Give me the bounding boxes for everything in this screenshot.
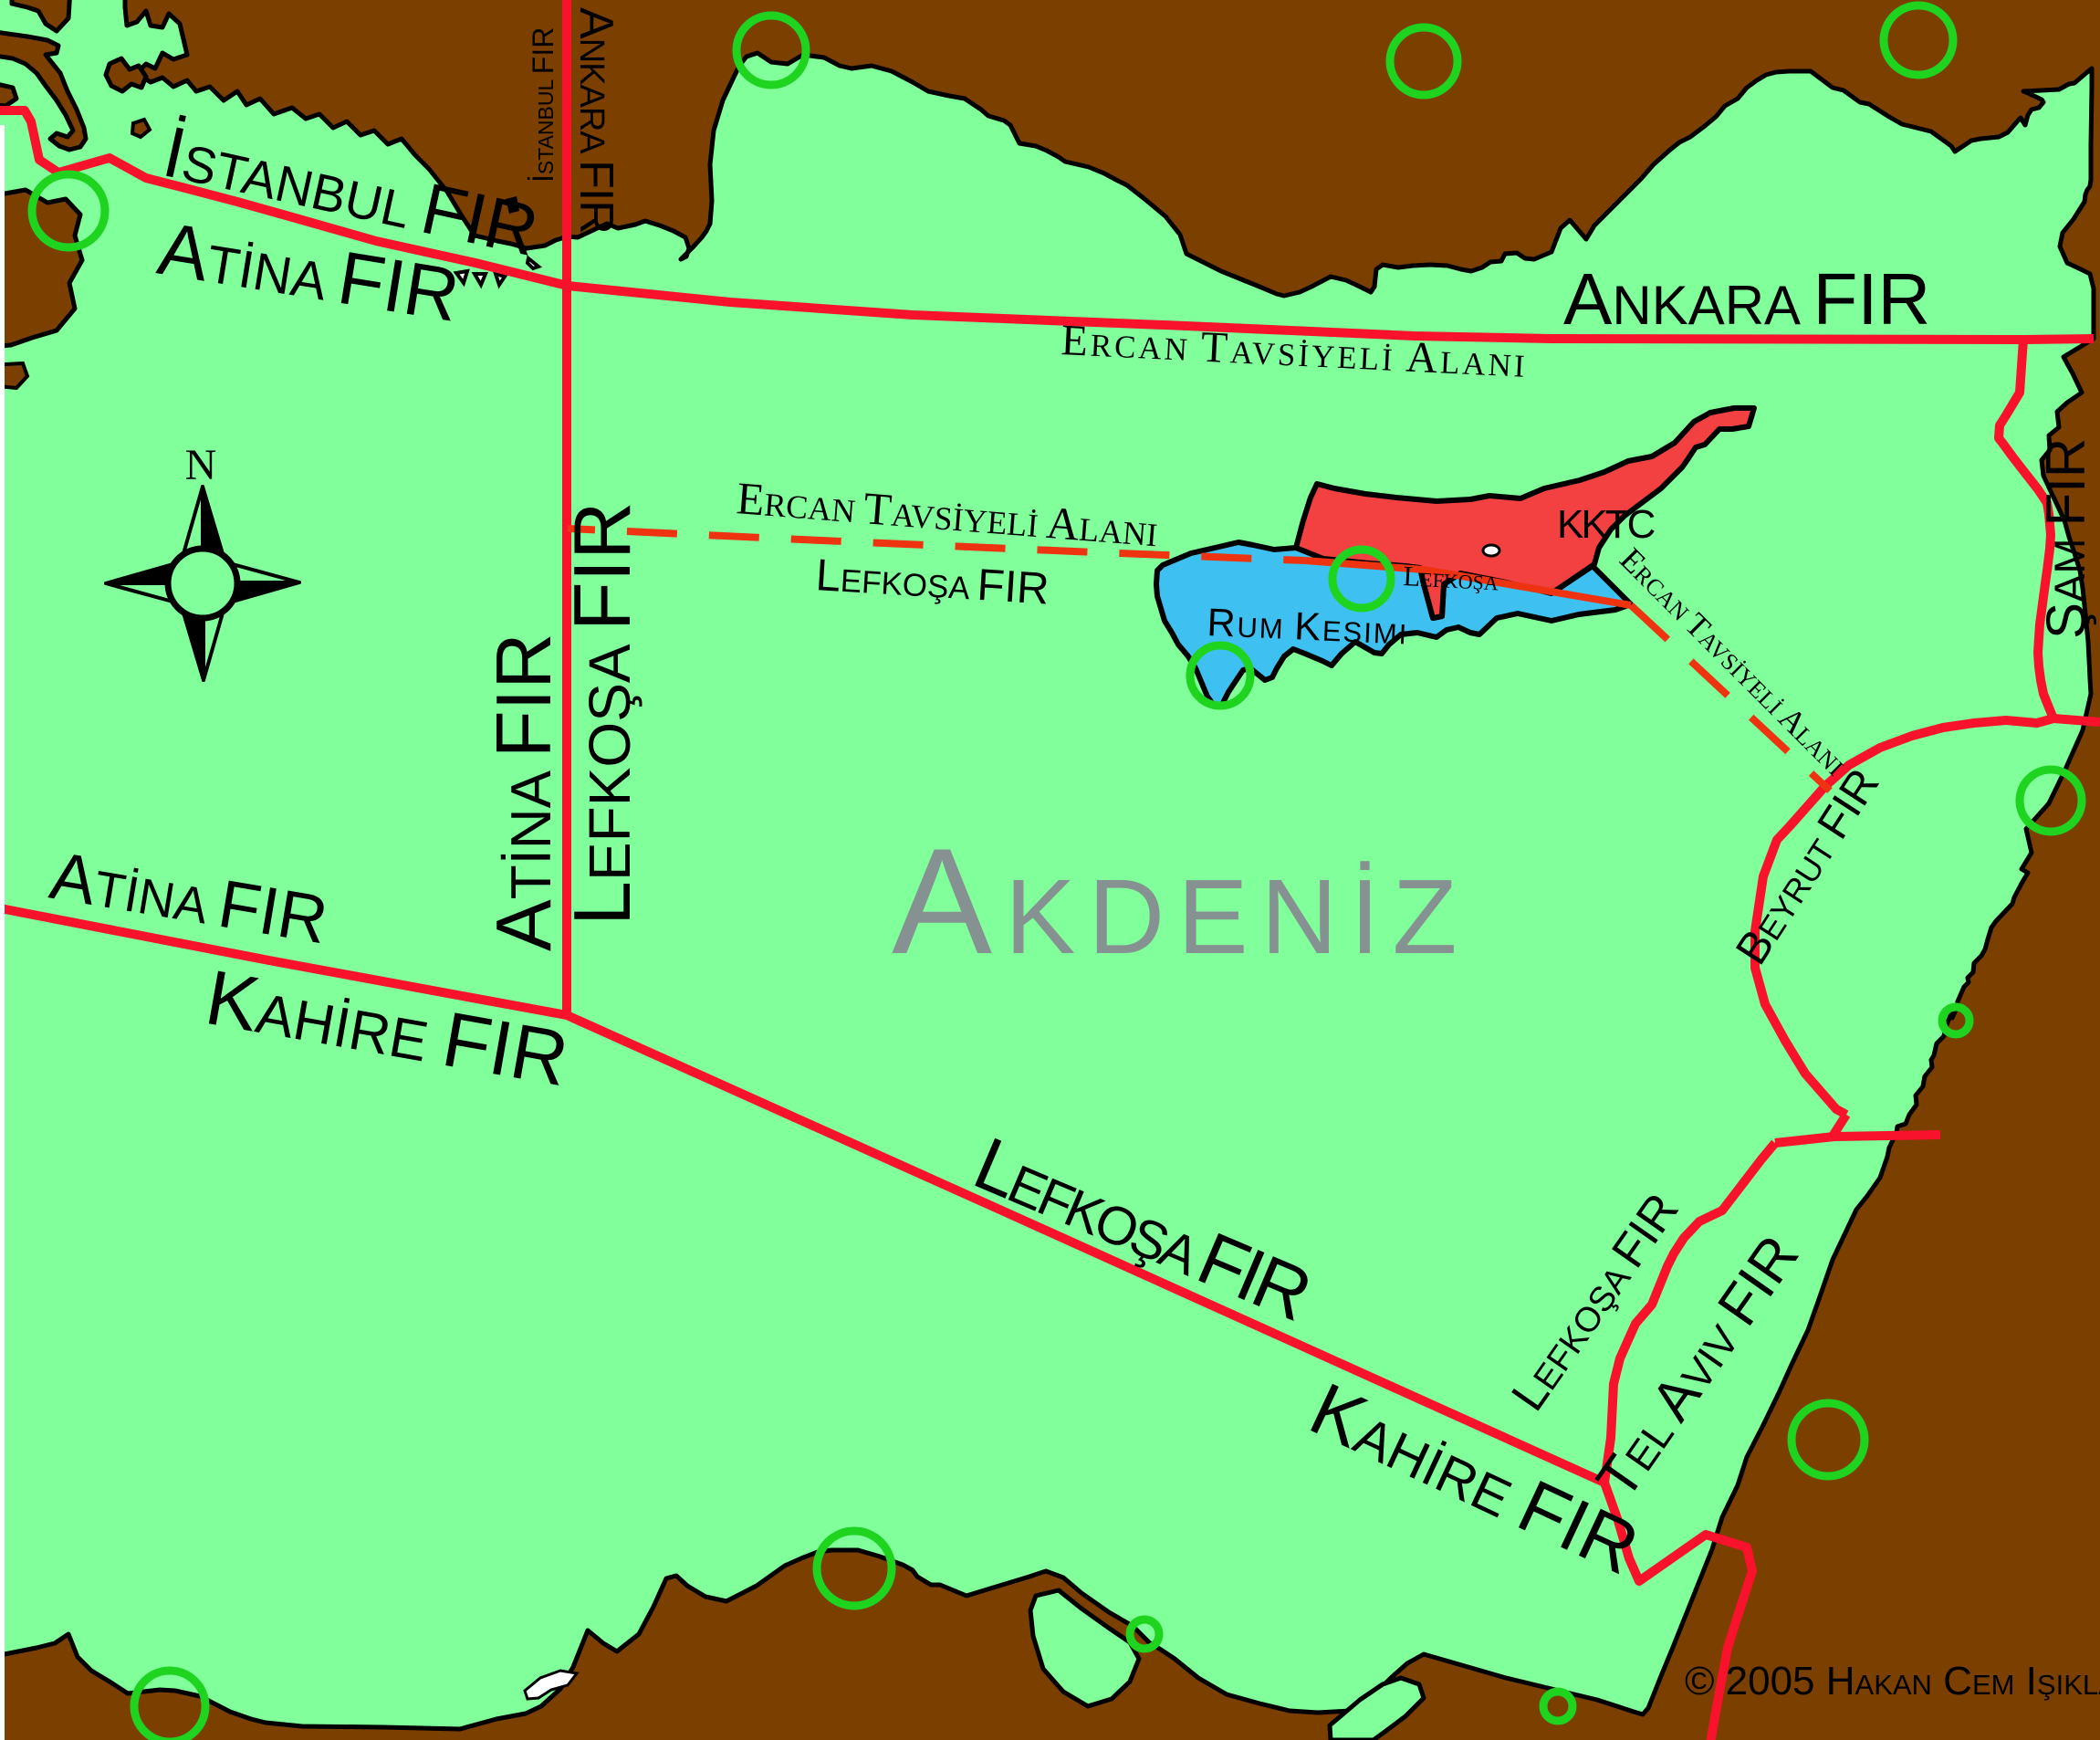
svg-text:N: N [185,441,217,489]
svg-text:ŞAM FIR: ŞAM FIR [2035,438,2096,639]
svg-text:KKTC: KKTC [1557,502,1656,547]
